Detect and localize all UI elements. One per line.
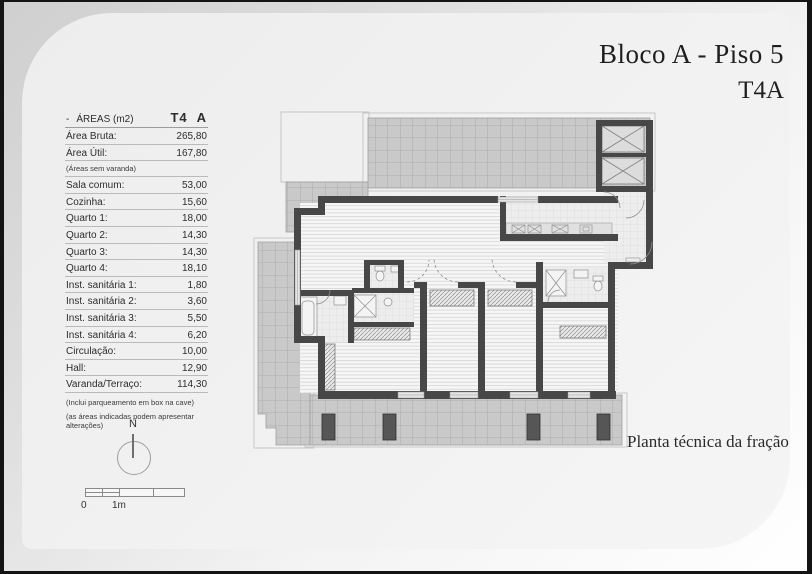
table-row: Inst. sanitária 3:5,50 — [65, 310, 208, 327]
unit-title: T4A — [599, 77, 784, 105]
row-label: Cozinha: — [66, 197, 105, 208]
scale-bar-subdivision — [102, 489, 103, 496]
table-row: Inst. sanitária 4:6,20 — [65, 327, 208, 344]
row-value: 18,10 — [182, 263, 207, 274]
table-row: Inst. sanitária 1:1,80 — [65, 277, 208, 294]
scale-bar — [85, 488, 185, 497]
scale-label-zero: 0 — [81, 500, 87, 511]
table-row: Inst. sanitária 2:3,60 — [65, 293, 208, 310]
row-value: 3,60 — [188, 296, 207, 307]
typology-fraction: A — [197, 110, 207, 125]
title-block: Bloco A - Piso 5 T4A — [599, 39, 784, 105]
row-value: 12,90 — [182, 363, 207, 374]
row-value: 53,00 — [182, 180, 207, 191]
row-label: Inst. sanitária 1: — [66, 280, 137, 291]
table-title: -ÁREAS (m2) — [66, 114, 134, 125]
table-typology: T4A — [170, 110, 207, 125]
row-value: 5,50 — [188, 313, 207, 324]
row-value: 1,80 — [188, 280, 207, 291]
table-title-text: ÁREAS (m2) — [76, 114, 133, 125]
scale-bar-division — [153, 489, 154, 496]
row-value: 6,20 — [188, 330, 207, 341]
row-value: 114,30 — [177, 379, 207, 390]
row-label: Área Bruta: — [66, 131, 117, 142]
table-row: Área Útil:167,80 — [65, 145, 208, 162]
terrace-bottom — [310, 395, 622, 445]
row-label: Quarto 4: — [66, 263, 108, 274]
row-label: Área Útil: — [66, 148, 107, 159]
areas-table: -ÁREAS (m2) T4A Área Bruta:265,80 Área Ú… — [65, 106, 208, 430]
table-row: Cozinha:15,60 — [65, 194, 208, 211]
row-value: 15,60 — [182, 197, 207, 208]
table-row: Varanda/Terraço:114,30 — [65, 376, 208, 393]
table-header: -ÁREAS (m2) T4A — [65, 106, 208, 128]
typology-type: T4 — [170, 110, 187, 125]
table-row: Área Bruta:265,80 — [65, 128, 208, 145]
scale-label-one-meter: 1m — [112, 500, 126, 511]
row-label: Inst. sanitária 3: — [66, 313, 137, 324]
kitchen-counter — [506, 223, 612, 235]
row-value: 167,80 — [176, 148, 207, 159]
north-circle — [117, 441, 151, 475]
row-label: Inst. sanitária 2: — [66, 296, 137, 307]
row-label: Hall: — [66, 363, 86, 374]
row-value: 10,00 — [182, 346, 207, 357]
row-value: 18,00 — [182, 213, 207, 224]
photo-frame-left — [0, 0, 4, 574]
row-label: Quarto 2: — [66, 230, 108, 241]
table-row: Circulação:10,00 — [65, 343, 208, 360]
row-value: 14,30 — [182, 247, 207, 258]
table-row: Quarto 2:14,30 — [65, 227, 208, 244]
table-row: Quarto 3:14,30 — [65, 244, 208, 261]
row-label: Varanda/Terraço: — [66, 379, 142, 390]
table-row: Sala comum:53,00 — [65, 177, 208, 194]
row-label: Quarto 3: — [66, 247, 108, 258]
row-label: Inst. sanitária 4: — [66, 330, 137, 341]
table-row: Hall:12,90 — [65, 360, 208, 377]
table-subnote: (Áreas sem varanda) — [65, 161, 208, 177]
table-title-dash: - — [66, 114, 69, 125]
photo-frame-right — [807, 0, 812, 574]
main-title: Bloco A - Piso 5 — [599, 39, 784, 70]
row-label: Quarto 1: — [66, 213, 108, 224]
scale-bar-division — [119, 489, 120, 496]
table-row: Quarto 4:18,10 — [65, 260, 208, 277]
row-value: 14,30 — [182, 230, 207, 241]
row-label: Circulação: — [66, 346, 116, 357]
row-value: 265,80 — [176, 131, 207, 142]
row-label: Sala comum: — [66, 180, 124, 191]
brochure-page: Bloco A - Piso 5 T4A Planta técnica da f… — [22, 13, 790, 549]
north-needle-icon — [132, 434, 134, 458]
floor-plan — [250, 105, 665, 453]
table-row: Quarto 1:18,00 — [65, 210, 208, 227]
table-footnote-1: (Inclui parqueamento em box na cave) — [65, 393, 208, 407]
photo-frame-top — [0, 0, 812, 2]
north-label: N — [122, 418, 144, 430]
